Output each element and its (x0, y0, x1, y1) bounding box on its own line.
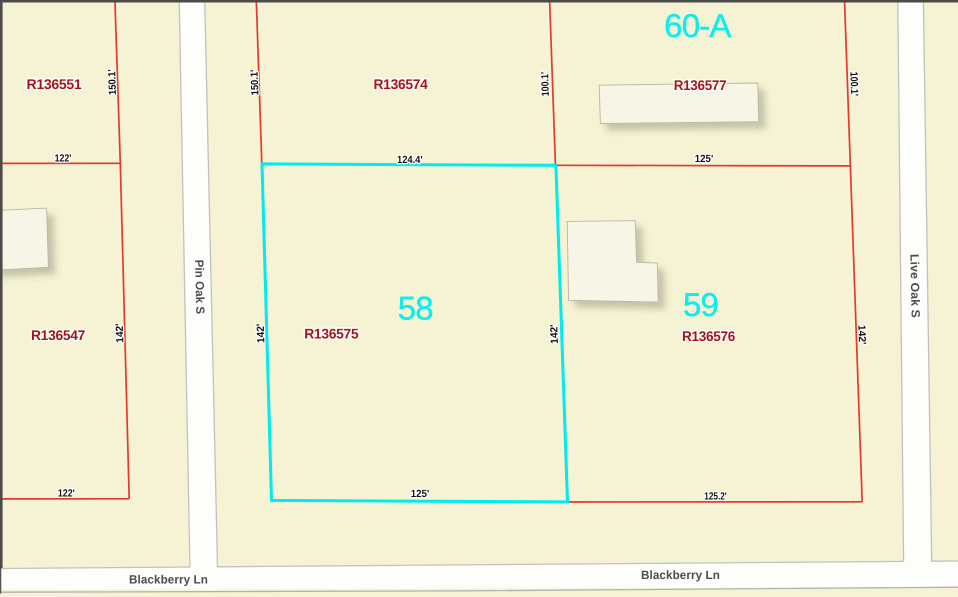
svg-text:142': 142' (549, 324, 561, 344)
svg-text:100.1': 100.1' (847, 72, 859, 97)
svg-text:R136574: R136574 (374, 76, 428, 92)
svg-text:150.1': 150.1' (250, 69, 262, 95)
svg-text:150.1': 150.1' (107, 69, 119, 95)
svg-text:122': 122' (58, 488, 75, 499)
svg-text:125': 125' (695, 154, 714, 165)
svg-text:R136551: R136551 (27, 76, 82, 92)
svg-text:122': 122' (55, 154, 72, 165)
svg-text:142': 142' (855, 325, 867, 345)
svg-text:R136577: R136577 (674, 77, 727, 93)
svg-text:R136575: R136575 (304, 326, 359, 342)
svg-text:142': 142' (115, 323, 127, 343)
svg-text:124.4': 124.4' (397, 155, 423, 166)
svg-text:60-A: 60-A (664, 7, 731, 44)
svg-text:125.2': 125.2' (704, 492, 727, 503)
svg-text:R136547: R136547 (31, 327, 85, 343)
svg-text:Blackberry Ln: Blackberry Ln (129, 572, 208, 586)
svg-text:58: 58 (398, 289, 433, 326)
svg-text:100.1': 100.1' (540, 72, 552, 97)
svg-text:Live Oak S: Live Oak S (907, 254, 922, 318)
svg-text:142': 142' (256, 323, 268, 343)
svg-text:59: 59 (683, 286, 718, 323)
svg-text:Blackberry Ln: Blackberry Ln (641, 568, 720, 582)
svg-text:Pin Oak S: Pin Oak S (192, 260, 207, 315)
svg-text:R136576: R136576 (682, 328, 735, 344)
svg-text:125': 125' (411, 489, 430, 500)
